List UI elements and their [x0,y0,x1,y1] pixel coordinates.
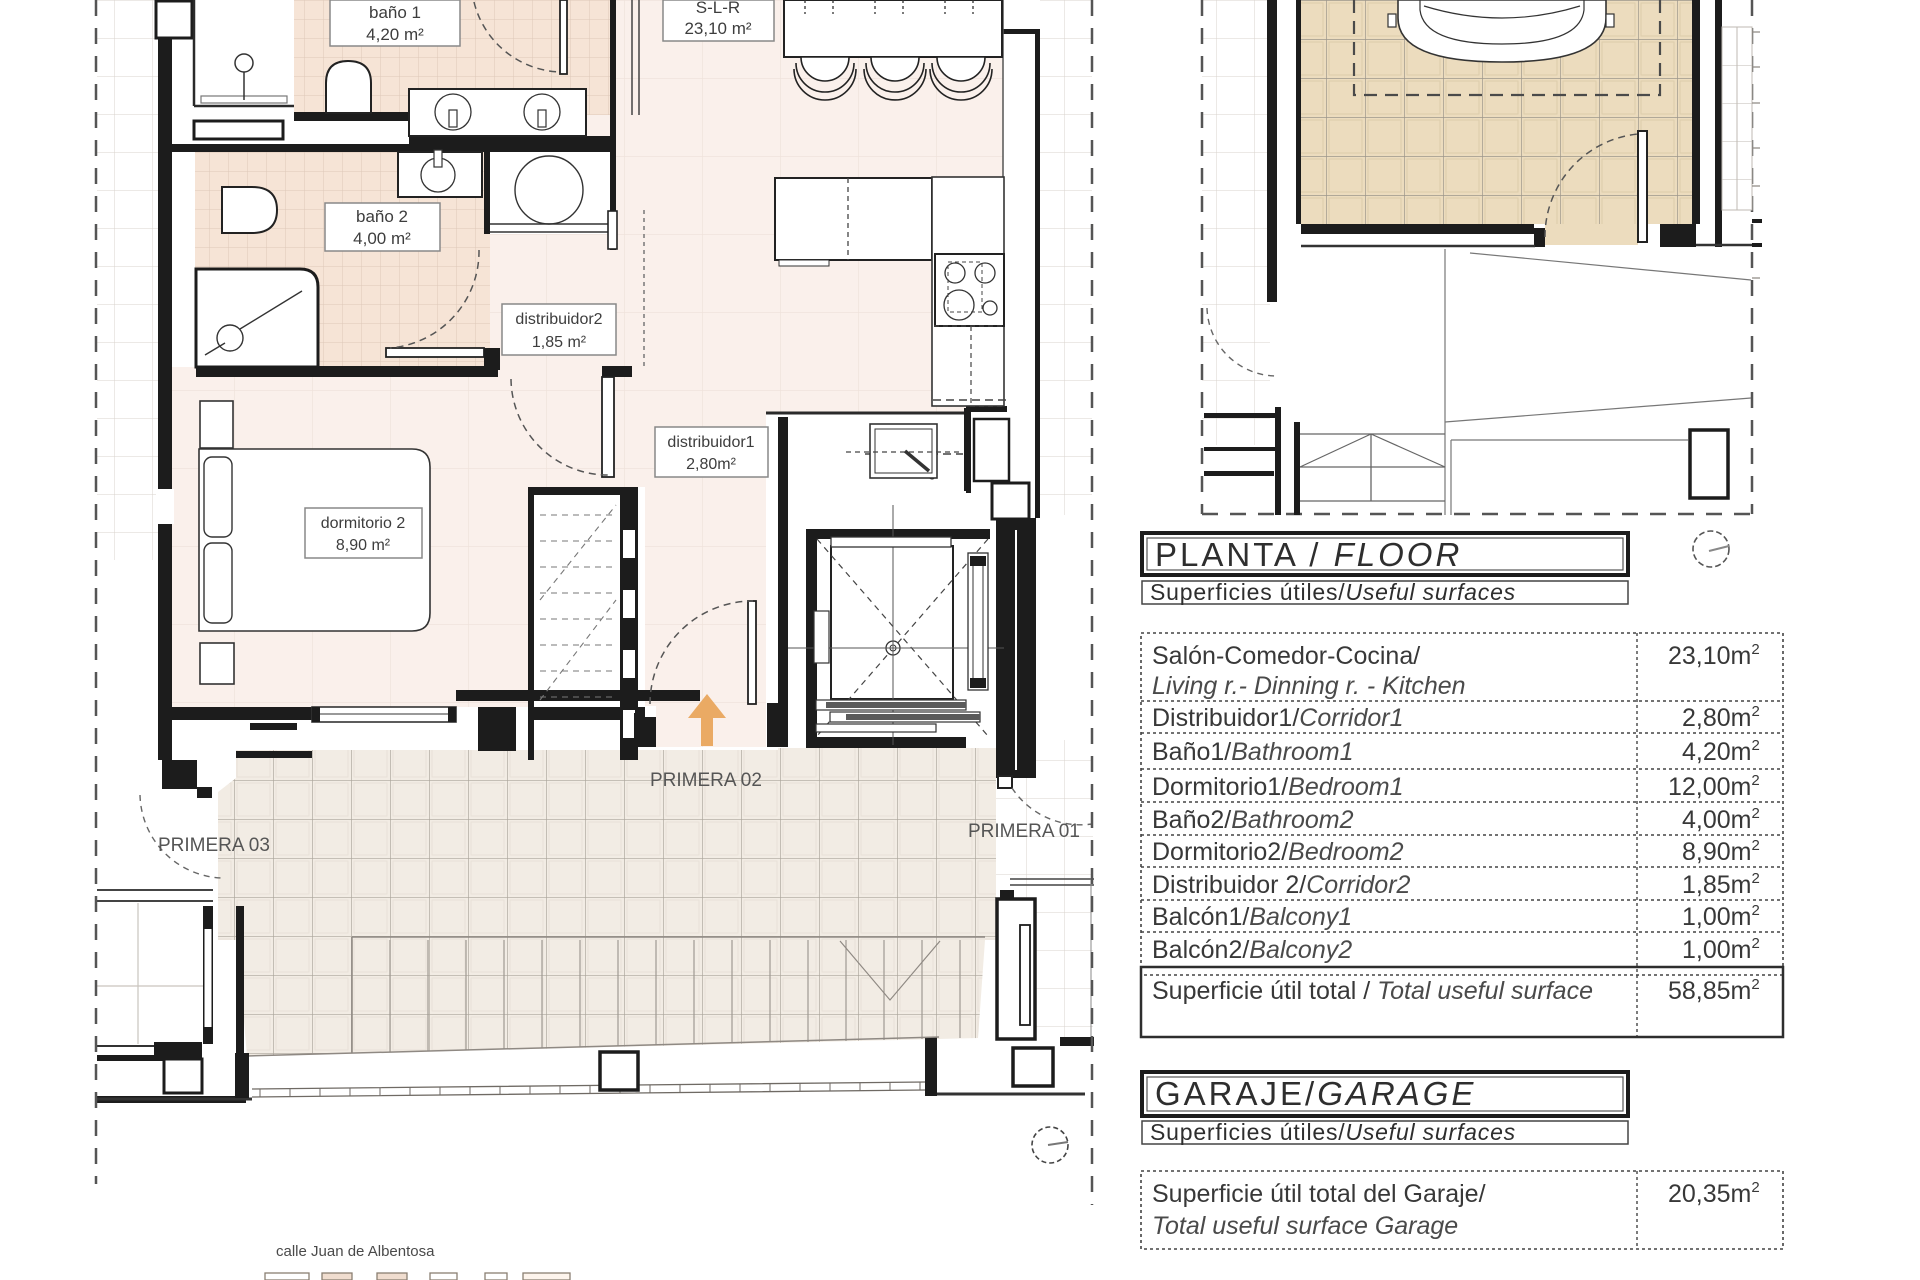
svg-text:58,85m2: 58,85m2 [1668,976,1760,1005]
svg-text:1,00m2: 1,00m2 [1682,902,1760,931]
svg-text:baño 2: baño 2 [356,207,408,226]
svg-text:1,00m2: 1,00m2 [1682,935,1760,964]
svg-text:Living r.- Dinning r. - Kitche: Living r.- Dinning r. - Kitchen [1152,672,1466,700]
svg-text:2,80m²: 2,80m² [686,456,736,473]
svg-text:S-L-R: S-L-R [696,0,740,17]
svg-text:calle Juan de Albentosa: calle Juan de Albentosa [276,1243,435,1260]
svg-text:8,90 m²: 8,90 m² [336,537,391,554]
svg-text:distribuidor2: distribuidor2 [515,311,602,328]
svg-text:Total useful surface Garage: Total useful surface Garage [1152,1212,1458,1240]
svg-text:23,10 m²: 23,10 m² [684,19,751,38]
svg-text:12,00m2: 12,00m2 [1668,772,1760,801]
svg-text:distribuidor1: distribuidor1 [667,434,754,451]
svg-text:Superficies útiles/Useful surf: Superficies útiles/Useful surfaces [1150,579,1516,605]
svg-text:4,20m2: 4,20m2 [1682,737,1760,766]
svg-text:Superficies útiles/Useful surf: Superficies útiles/Useful surfaces [1150,1119,1516,1145]
svg-text:Superficie útil total / Total: Superficie útil total / Total useful sur… [1152,977,1593,1005]
svg-text:Baño1/Bathroom1: Baño1/Bathroom1 [1152,738,1354,766]
svg-text:Balcón1/Balcony1: Balcón1/Balcony1 [1152,903,1352,931]
svg-text:PLANTA / FLOOR: PLANTA / FLOOR [1155,536,1462,573]
svg-text:20,35m2: 20,35m2 [1668,1179,1760,1208]
svg-text:4,00 m²: 4,00 m² [353,229,411,248]
svg-text:1,85 m²: 1,85 m² [532,334,587,351]
svg-text:PRIMERA 02: PRIMERA 02 [650,770,762,791]
svg-text:2,80m2: 2,80m2 [1682,703,1760,732]
svg-text:Baño2/Bathroom2: Baño2/Bathroom2 [1152,806,1354,834]
svg-text:Superficie útil total del Gara: Superficie útil total del Garaje/ [1152,1180,1486,1208]
svg-text:GARAJE/GARAGE: GARAJE/GARAGE [1155,1075,1476,1112]
svg-text:Dormitorio1/Bedroom1: Dormitorio1/Bedroom1 [1152,773,1404,801]
svg-text:Dormitorio2/Bedroom2: Dormitorio2/Bedroom2 [1152,838,1404,866]
svg-text:4,20 m²: 4,20 m² [366,25,424,44]
svg-text:23,10m2: 23,10m2 [1668,641,1760,670]
svg-text:dormitorio 2: dormitorio 2 [321,515,406,532]
svg-text:PRIMERA 03: PRIMERA 03 [158,835,270,856]
svg-text:Distribuidor1/Corridor1: Distribuidor1/Corridor1 [1152,704,1403,732]
svg-text:Balcón2/Balcony2: Balcón2/Balcony2 [1152,936,1352,964]
svg-text:Distribuidor 2/Corridor2: Distribuidor 2/Corridor2 [1152,871,1411,899]
svg-text:8,90m2: 8,90m2 [1682,837,1760,866]
svg-text:1,85m2: 1,85m2 [1682,870,1760,899]
svg-text:PRIMERA 01: PRIMERA 01 [968,821,1080,842]
svg-text:baño 1: baño 1 [369,3,421,22]
svg-text:Salón-Comedor-Cocina/: Salón-Comedor-Cocina/ [1152,642,1420,670]
svg-text:4,00m2: 4,00m2 [1682,805,1760,834]
